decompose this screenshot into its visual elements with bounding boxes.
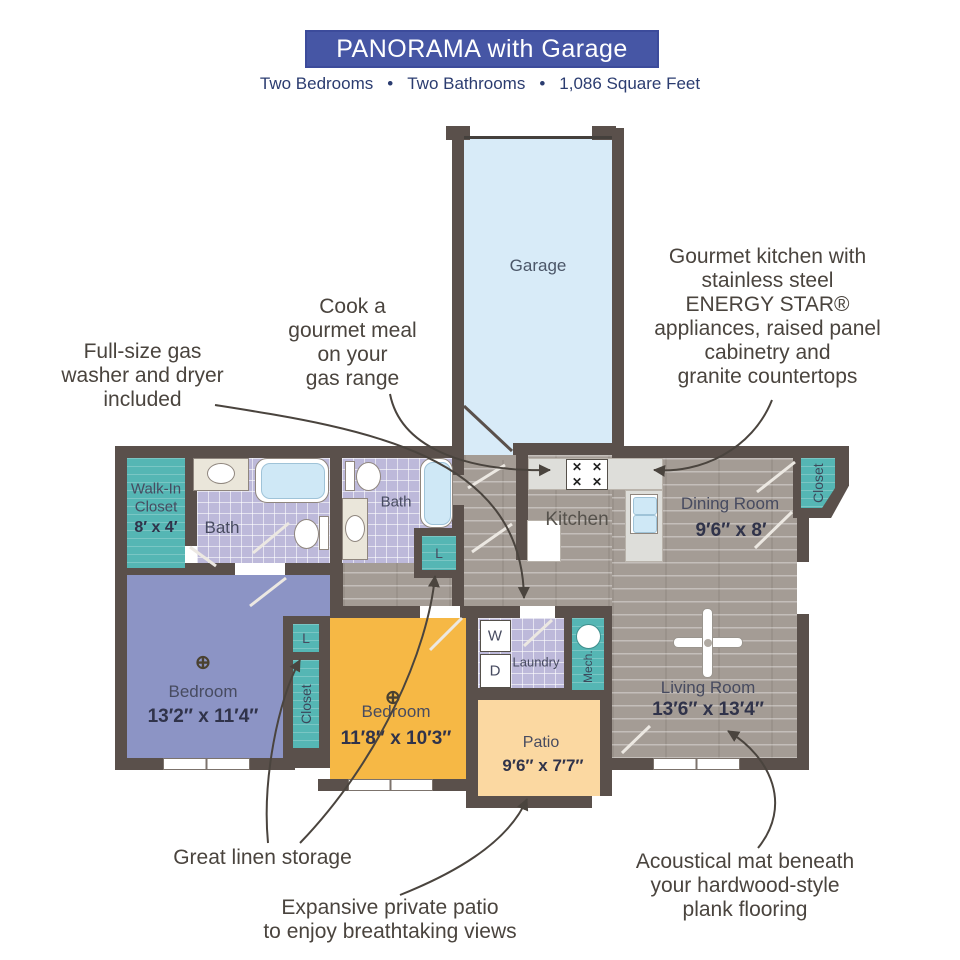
burner-icon: ✕ xyxy=(592,460,602,474)
toilet-bowl xyxy=(356,462,381,491)
living-room-window xyxy=(653,758,740,770)
master-bedroom-label: Bedroom xyxy=(169,682,238,702)
wall xyxy=(115,758,163,770)
wall xyxy=(330,446,342,575)
hall-linen-label: L xyxy=(302,630,310,646)
kitchen-label: Kitchen xyxy=(545,509,608,531)
bedroom-window xyxy=(163,758,250,770)
wall xyxy=(612,758,653,770)
living-room-dims: 13′6″ x 13′4″ xyxy=(652,699,764,721)
wall xyxy=(318,779,348,791)
patio-label: Patio xyxy=(523,734,559,752)
toilet-tank xyxy=(319,516,329,550)
wall xyxy=(600,688,612,796)
wall xyxy=(452,455,464,475)
wall xyxy=(466,796,592,808)
walk-in-closet-label: Walk-In xyxy=(131,481,181,498)
wall xyxy=(797,614,809,770)
master-bedroom-doorway xyxy=(285,575,330,622)
wall xyxy=(612,128,624,458)
second-bedroom-dims: 11′8″ x 10′3″ xyxy=(341,728,452,750)
patio-dims: 9′6″ x 7′7″ xyxy=(502,756,583,776)
toilet-bowl xyxy=(294,519,319,549)
mech-label: Mech. xyxy=(572,644,604,690)
wall xyxy=(115,446,455,458)
garage-room xyxy=(464,139,612,455)
bath-linen-label: L xyxy=(435,545,443,561)
annotation-cook: Cook a gourmet meal on your gas range xyxy=(265,295,440,391)
annotation-arrow-patio xyxy=(400,799,527,895)
wall xyxy=(452,128,464,458)
wall xyxy=(466,606,478,700)
bathroom-sink xyxy=(207,463,235,484)
wall xyxy=(513,443,624,455)
bathroom-sink xyxy=(345,515,365,542)
floor-plan: ✕ ✕ ✕ ✕ Garage Walk-In Closet 8′ x 4′ Ba… xyxy=(0,0,960,960)
toilet-tank xyxy=(345,461,355,491)
annotation-private-patio: Expansive private patio to enjoy breatht… xyxy=(240,896,540,944)
wall xyxy=(115,446,127,770)
walk-in-closet-dims: 8′ x 4′ xyxy=(134,519,177,537)
master-bath-label: Bath xyxy=(205,518,240,538)
wall xyxy=(328,606,420,618)
living-room-label: Living Room xyxy=(661,678,756,698)
hall-closet-label: Closet xyxy=(293,660,319,748)
dining-room-label: Dining Room xyxy=(681,494,779,514)
ceiling-fan-icon: ⊕ xyxy=(195,652,211,675)
sink-basin xyxy=(633,515,657,533)
garage-door-line xyxy=(464,136,612,139)
wall xyxy=(466,688,478,808)
garage-label: Garage xyxy=(510,256,567,276)
bedroom-window xyxy=(348,779,433,791)
annotation-gourmet-kitchen: Gourmet kitchen with stainless steel ENE… xyxy=(625,245,910,389)
annotation-linen-storage: Great linen storage xyxy=(150,846,375,870)
washer-label: W xyxy=(488,628,502,645)
dining-closet-label: Closet xyxy=(803,456,833,510)
second-bedroom-label: Bedroom xyxy=(362,702,431,722)
master-bedroom-dims: 13′2″ x 11′4″ xyxy=(148,706,259,728)
bathtub-basin xyxy=(261,463,325,499)
second-bath-label: Bath xyxy=(381,494,412,511)
burner-icon: ✕ xyxy=(572,475,582,489)
dining-room-dims: 9′6″ x 8′ xyxy=(695,520,766,542)
burner-icon: ✕ xyxy=(572,460,582,474)
sink-basin xyxy=(633,497,657,515)
walk-in-closet-label: Closet xyxy=(135,499,178,516)
burner-icon: ✕ xyxy=(592,475,602,489)
laundry-label: Laundry xyxy=(513,655,560,670)
annotation-acoustical-mat: Acoustical mat beneath your hardwood-sty… xyxy=(605,850,885,922)
annotation-washer-dryer: Full-size gas washer and dryer included xyxy=(40,340,245,412)
dryer-label: D xyxy=(490,663,501,680)
stove: ✕ ✕ ✕ ✕ xyxy=(566,459,608,490)
bathtub-basin xyxy=(424,462,451,525)
ceiling-fan-hub xyxy=(704,639,712,647)
